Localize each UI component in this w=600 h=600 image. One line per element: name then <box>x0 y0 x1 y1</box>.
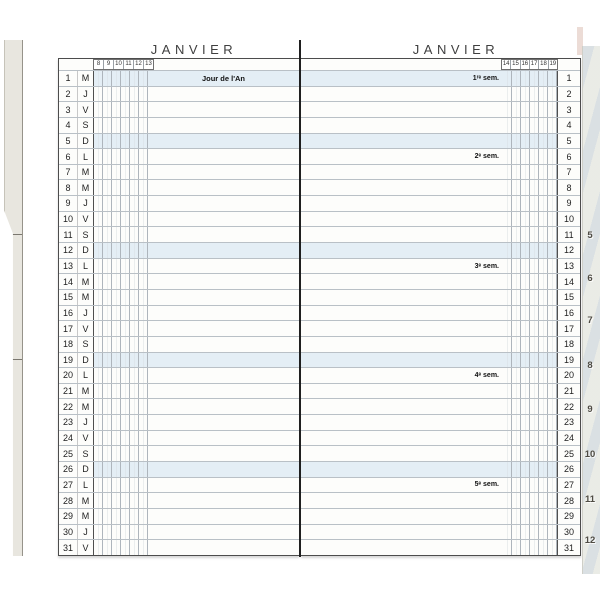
day-letter: S <box>78 446 94 461</box>
hour-grid <box>503 415 557 430</box>
entry-area <box>148 431 299 446</box>
day-number: 9 <box>557 196 580 211</box>
right-day-row: 14 <box>301 273 580 289</box>
left-day-row: 4S <box>59 117 299 133</box>
day-number: 15 <box>557 290 580 305</box>
holiday-label: Jour de l'An <box>148 71 299 86</box>
day-letter: S <box>78 227 94 242</box>
entry-area <box>301 134 503 149</box>
week-label: 2ᵉ sem. <box>475 149 499 164</box>
hour-grid <box>503 149 557 164</box>
left-day-row: 28M <box>59 492 299 508</box>
hour-label: 8 <box>94 60 104 69</box>
left-day-row: 26D <box>59 461 299 477</box>
day-number: 17 <box>557 321 580 336</box>
day-letter: L <box>78 149 94 164</box>
day-number: 9 <box>59 196 78 211</box>
hour-grid <box>503 321 557 336</box>
day-number: 2 <box>557 87 580 102</box>
day-number: 14 <box>59 274 78 289</box>
right-hour-header: 141516171819 <box>501 59 558 70</box>
entry-area <box>148 462 299 477</box>
day-number: 22 <box>59 399 78 414</box>
day-number: 10 <box>557 212 580 227</box>
entry-area <box>301 353 503 368</box>
day-number: 11 <box>557 227 580 242</box>
entry-area <box>148 274 299 289</box>
hour-grid <box>94 431 148 446</box>
day-letter: L <box>78 259 94 274</box>
hour-grid <box>503 243 557 258</box>
right-day-row: 5ᵉ sem.27 <box>301 477 580 493</box>
hour-grid <box>503 102 557 117</box>
right-day-row: 4 <box>301 117 580 133</box>
left-day-row: 11S <box>59 226 299 242</box>
day-number: 25 <box>59 446 78 461</box>
entry-area <box>301 525 503 540</box>
entry-area <box>148 259 299 274</box>
hour-grid <box>503 431 557 446</box>
entry-area <box>148 196 299 211</box>
hour-grid <box>94 321 148 336</box>
left-day-row: 30J <box>59 524 299 540</box>
right-day-row: 26 <box>301 461 580 477</box>
hour-grid <box>503 274 557 289</box>
day-number: 12 <box>557 243 580 258</box>
hour-grid <box>94 196 148 211</box>
right-day-row: 30 <box>301 524 580 540</box>
day-number: 7 <box>557 165 580 180</box>
week-tab[interactable]: 11 <box>581 494 599 508</box>
day-number: 21 <box>557 384 580 399</box>
hour-label: 13 <box>144 60 153 69</box>
day-letter: L <box>78 368 94 383</box>
left-day-row: 1MJour de l'An <box>59 70 299 86</box>
week-tab[interactable]: 12 <box>581 535 599 549</box>
hour-grid <box>94 525 148 540</box>
entry-area <box>301 165 503 180</box>
left-day-row: 25S <box>59 445 299 461</box>
entry-area <box>301 321 503 336</box>
entry-area: Jour de l'An <box>148 71 299 86</box>
day-letter: V <box>78 212 94 227</box>
hour-grid <box>503 478 557 493</box>
left-day-row: 31V <box>59 539 299 555</box>
hour-label: 17 <box>530 60 539 69</box>
day-number: 6 <box>557 149 580 164</box>
entry-area <box>301 87 503 102</box>
hour-grid <box>94 353 148 368</box>
entry-area <box>301 274 503 289</box>
entry-area <box>301 399 503 414</box>
hour-grid <box>94 274 148 289</box>
day-number: 3 <box>557 102 580 117</box>
day-letter: M <box>78 399 94 414</box>
entry-area <box>148 87 299 102</box>
entry-area <box>301 290 503 305</box>
hour-grid <box>503 368 557 383</box>
hour-grid <box>94 259 148 274</box>
entry-area <box>148 212 299 227</box>
left-day-row: 21M <box>59 383 299 399</box>
day-letter: M <box>78 180 94 195</box>
hour-grid <box>503 337 557 352</box>
hour-grid <box>503 165 557 180</box>
day-number: 31 <box>59 540 78 555</box>
day-letter: J <box>78 87 94 102</box>
binding-spine <box>299 40 301 557</box>
entry-area <box>148 399 299 414</box>
right-day-row: 2 <box>301 86 580 102</box>
entry-area <box>301 212 503 227</box>
week-label: 1ʳᵉ sem. <box>473 71 499 86</box>
left-day-row: 18S <box>59 336 299 352</box>
entry-area <box>301 415 503 430</box>
entry-area <box>148 368 299 383</box>
left-day-row: 12D <box>59 242 299 258</box>
week-label: 3ᵉ sem. <box>475 259 499 274</box>
hour-grid <box>503 118 557 133</box>
day-number: 30 <box>557 525 580 540</box>
day-number: 31 <box>557 540 580 555</box>
day-number: 24 <box>59 431 78 446</box>
right-day-row: 23 <box>301 414 580 430</box>
week-tab[interactable]: 5 <box>581 230 599 244</box>
hour-grid <box>94 243 148 258</box>
right-day-row: 22 <box>301 398 580 414</box>
left-day-row: 3V <box>59 101 299 117</box>
left-day-row: 22M <box>59 398 299 414</box>
day-number: 10 <box>59 212 78 227</box>
day-letter: S <box>78 337 94 352</box>
day-number: 29 <box>59 509 78 524</box>
left-page-calendar: 8910111213 1MJour de l'An2J3V4S5D6L7M8M9… <box>58 58 299 556</box>
day-number: 18 <box>59 337 78 352</box>
day-number: 19 <box>59 353 78 368</box>
entry-area <box>148 337 299 352</box>
week-label: 4ᵉ sem. <box>475 368 499 383</box>
week-tab[interactable]: 7 <box>581 315 599 329</box>
day-letter: V <box>78 431 94 446</box>
day-number: 3 <box>59 102 78 117</box>
left-day-row: 7M <box>59 164 299 180</box>
hour-grid <box>503 227 557 242</box>
hour-grid <box>94 478 148 493</box>
right-day-rows: 1ʳᵉ sem.123452ᵉ sem.67891011123ᵉ sem.131… <box>301 70 580 555</box>
left-day-row: 19D <box>59 352 299 368</box>
hour-grid <box>94 165 148 180</box>
left-day-row: 17V <box>59 320 299 336</box>
day-number: 13 <box>557 259 580 274</box>
week-tab[interactable]: 9 <box>581 404 599 418</box>
entry-area <box>148 478 299 493</box>
day-number: 23 <box>557 415 580 430</box>
day-number: 1 <box>557 71 580 86</box>
hour-label: 9 <box>104 60 114 69</box>
day-number: 15 <box>59 290 78 305</box>
day-letter: J <box>78 306 94 321</box>
entry-area <box>148 243 299 258</box>
day-number: 1 <box>59 71 78 86</box>
day-number: 2 <box>59 87 78 102</box>
day-letter: V <box>78 321 94 336</box>
entry-area <box>148 306 299 321</box>
right-day-row: 18 <box>301 336 580 352</box>
day-letter: D <box>78 243 94 258</box>
day-letter: M <box>78 274 94 289</box>
day-number: 18 <box>557 337 580 352</box>
right-day-row: 19 <box>301 352 580 368</box>
day-number: 6 <box>59 149 78 164</box>
right-day-row: 31 <box>301 539 580 555</box>
entry-area <box>148 227 299 242</box>
day-letter: M <box>78 165 94 180</box>
hour-label: 16 <box>521 60 530 69</box>
right-day-row: 10 <box>301 211 580 227</box>
hour-label: 12 <box>134 60 144 69</box>
day-letter: D <box>78 134 94 149</box>
hour-grid <box>503 180 557 195</box>
hour-grid <box>94 368 148 383</box>
day-number: 19 <box>557 353 580 368</box>
entry-area: 4ᵉ sem. <box>301 368 503 383</box>
entry-area <box>148 149 299 164</box>
hour-grid <box>94 446 148 461</box>
left-day-row: 27L <box>59 477 299 493</box>
hour-grid <box>94 212 148 227</box>
left-day-row: 23J <box>59 414 299 430</box>
left-day-row: 2J <box>59 86 299 102</box>
entry-area <box>301 118 503 133</box>
day-number: 30 <box>59 525 78 540</box>
hour-grid <box>94 87 148 102</box>
entry-area: 1ʳᵉ sem. <box>301 71 503 86</box>
hour-grid <box>94 462 148 477</box>
hour-grid <box>503 290 557 305</box>
hour-label: 18 <box>539 60 548 69</box>
left-day-row: 9J <box>59 195 299 211</box>
hour-grid <box>503 306 557 321</box>
entry-area <box>301 462 503 477</box>
day-letter: D <box>78 353 94 368</box>
entry-area <box>301 540 503 555</box>
day-number: 13 <box>59 259 78 274</box>
entry-area <box>148 525 299 540</box>
right-page-calendar: 141516171819 1ʳᵉ sem.123452ᵉ sem.6789101… <box>301 58 581 556</box>
day-number: 22 <box>557 399 580 414</box>
entry-area <box>301 102 503 117</box>
entry-area: 3ᵉ sem. <box>301 259 503 274</box>
left-day-row: 16J <box>59 305 299 321</box>
entry-area <box>301 431 503 446</box>
day-number: 25 <box>557 446 580 461</box>
day-letter: S <box>78 118 94 133</box>
entry-area <box>148 493 299 508</box>
hour-grid <box>503 71 557 86</box>
day-number: 27 <box>557 478 580 493</box>
entry-area <box>301 337 503 352</box>
day-letter: J <box>78 525 94 540</box>
day-number: 5 <box>59 134 78 149</box>
hour-grid <box>94 118 148 133</box>
day-number: 20 <box>59 368 78 383</box>
day-letter: M <box>78 493 94 508</box>
entry-area <box>301 243 503 258</box>
day-number: 16 <box>59 306 78 321</box>
day-number: 11 <box>59 227 78 242</box>
left-day-row: 29M <box>59 508 299 524</box>
day-number: 28 <box>557 493 580 508</box>
previous-pages-edge <box>4 40 23 556</box>
left-day-row: 20L <box>59 367 299 383</box>
hour-grid <box>503 493 557 508</box>
day-number: 8 <box>59 180 78 195</box>
day-letter: J <box>78 415 94 430</box>
entry-area <box>148 102 299 117</box>
entry-area <box>301 384 503 399</box>
day-letter: M <box>78 509 94 524</box>
day-number: 4 <box>59 118 78 133</box>
hour-grid <box>94 180 148 195</box>
hour-grid <box>94 493 148 508</box>
right-day-row: 7 <box>301 164 580 180</box>
entry-area <box>148 509 299 524</box>
hour-grid <box>503 259 557 274</box>
left-month-title: JANVIER <box>74 42 314 58</box>
right-day-row: 8 <box>301 179 580 195</box>
day-number: 5 <box>557 134 580 149</box>
day-number: 20 <box>557 368 580 383</box>
left-day-row: 10V <box>59 211 299 227</box>
entry-area <box>148 446 299 461</box>
left-day-row: 14M <box>59 273 299 289</box>
week-tab[interactable]: 10 <box>581 449 599 463</box>
day-letter: L <box>78 478 94 493</box>
hour-grid <box>94 306 148 321</box>
day-number: 21 <box>59 384 78 399</box>
hour-grid <box>94 149 148 164</box>
entry-area: 5ᵉ sem. <box>301 478 503 493</box>
page-edge-line <box>5 234 22 235</box>
entry-area <box>148 134 299 149</box>
hour-grid <box>94 227 148 242</box>
right-day-row: 2ᵉ sem.6 <box>301 148 580 164</box>
hour-label: 15 <box>511 60 520 69</box>
hour-label: 14 <box>502 60 511 69</box>
week-label: 5ᵉ sem. <box>475 478 499 493</box>
hour-grid <box>94 71 148 86</box>
page-edge-line <box>5 359 22 360</box>
day-letter: M <box>78 384 94 399</box>
entry-area <box>148 290 299 305</box>
right-day-row: 12 <box>301 242 580 258</box>
entry-area <box>301 509 503 524</box>
entry-area <box>148 384 299 399</box>
left-day-row: 24V <box>59 430 299 446</box>
right-day-row: 5 <box>301 133 580 149</box>
hour-grid <box>503 462 557 477</box>
entry-area <box>301 180 503 195</box>
right-day-row: 24 <box>301 430 580 446</box>
entry-area <box>301 493 503 508</box>
right-day-row: 29 <box>301 508 580 524</box>
right-day-row: 28 <box>301 492 580 508</box>
hour-grid <box>94 337 148 352</box>
day-number: 26 <box>59 462 78 477</box>
day-number: 7 <box>59 165 78 180</box>
day-number: 17 <box>59 321 78 336</box>
day-letter: D <box>78 462 94 477</box>
day-number: 23 <box>59 415 78 430</box>
hour-grid <box>503 212 557 227</box>
hour-grid <box>94 415 148 430</box>
hour-label: 10 <box>114 60 124 69</box>
right-day-row: 25 <box>301 445 580 461</box>
right-month-title: JANVIER <box>326 42 586 58</box>
hour-grid <box>503 540 557 555</box>
day-number: 4 <box>557 118 580 133</box>
hour-grid <box>503 509 557 524</box>
day-number: 14 <box>557 274 580 289</box>
entry-area <box>148 540 299 555</box>
week-tab[interactable]: 8 <box>581 360 599 374</box>
entry-area <box>301 306 503 321</box>
hour-grid <box>94 384 148 399</box>
hour-label: 19 <box>549 60 557 69</box>
left-day-row: 15M <box>59 289 299 305</box>
hour-grid <box>94 134 148 149</box>
entry-area: 2ᵉ sem. <box>301 149 503 164</box>
hour-grid <box>503 399 557 414</box>
entry-area <box>301 196 503 211</box>
day-number: 24 <box>557 431 580 446</box>
right-day-row: 15 <box>301 289 580 305</box>
day-letter: J <box>78 196 94 211</box>
right-day-row: 11 <box>301 226 580 242</box>
day-number: 29 <box>557 509 580 524</box>
entry-area <box>301 446 503 461</box>
entry-area <box>301 227 503 242</box>
hour-grid <box>503 525 557 540</box>
left-day-row: 8M <box>59 179 299 195</box>
right-day-row: 1ʳᵉ sem.1 <box>301 70 580 86</box>
day-number: 12 <box>59 243 78 258</box>
hour-grid <box>94 290 148 305</box>
right-day-row: 16 <box>301 305 580 321</box>
week-tab[interactable]: 6 <box>581 273 599 287</box>
left-day-rows: 1MJour de l'An2J3V4S5D6L7M8M9J10V11S12D1… <box>59 70 299 555</box>
left-day-row: 5D <box>59 133 299 149</box>
day-letter: V <box>78 540 94 555</box>
left-hour-header: 8910111213 <box>93 59 154 70</box>
entry-area <box>148 165 299 180</box>
right-day-row: 21 <box>301 383 580 399</box>
hour-grid <box>94 509 148 524</box>
hour-grid <box>503 87 557 102</box>
hour-grid <box>503 446 557 461</box>
right-day-row: 4ᵉ sem.20 <box>301 367 580 383</box>
hour-grid <box>503 384 557 399</box>
entry-area <box>148 118 299 133</box>
day-number: 27 <box>59 478 78 493</box>
hour-grid <box>94 540 148 555</box>
day-letter: M <box>78 71 94 86</box>
entry-area <box>148 180 299 195</box>
entry-area <box>148 353 299 368</box>
hour-grid <box>503 353 557 368</box>
right-day-row: 3 <box>301 101 580 117</box>
right-day-row: 3ᵉ sem.13 <box>301 258 580 274</box>
